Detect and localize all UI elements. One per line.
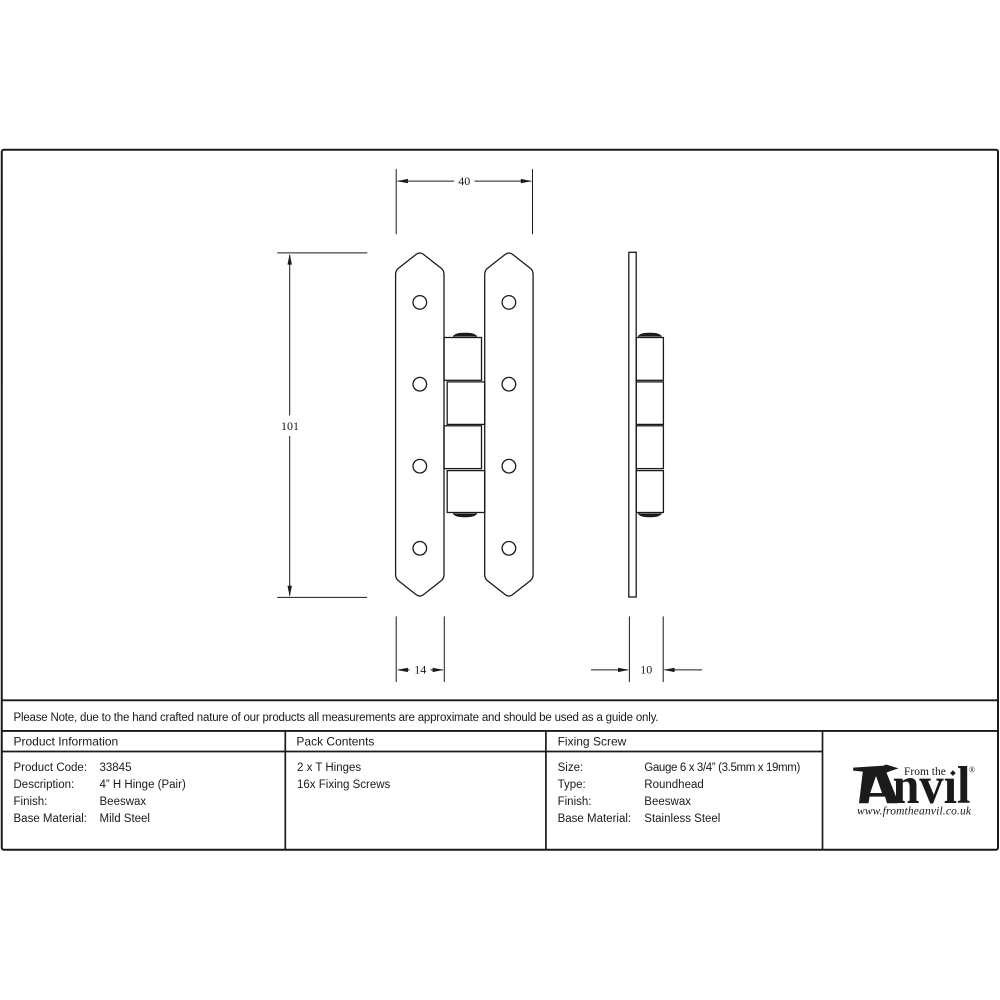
svg-text:Type:: Type:	[558, 779, 586, 791]
svg-text:10: 10	[640, 663, 652, 677]
svg-text:101: 101	[281, 419, 299, 433]
svg-text:Beeswax: Beeswax	[100, 796, 147, 808]
svg-text:40: 40	[458, 174, 470, 188]
svg-text:4” H Hinge (Pair): 4” H Hinge (Pair)	[100, 779, 186, 791]
svg-text:33845: 33845	[100, 762, 132, 774]
svg-text:Gauge 6 x 3/4” (3.5mm x 19mm): Gauge 6 x 3/4” (3.5mm x 19mm)	[644, 762, 800, 774]
svg-text:Product Information: Product Information	[14, 734, 119, 748]
svg-text:Size:: Size:	[558, 762, 584, 774]
svg-text:Beeswax: Beeswax	[644, 796, 691, 808]
svg-text:2 x T Hinges: 2 x T Hinges	[297, 762, 361, 774]
svg-text:Finish:: Finish:	[14, 796, 48, 808]
svg-text:Product Code:: Product Code:	[14, 762, 88, 774]
svg-text:16x Fixing Screws: 16x Fixing Screws	[297, 779, 391, 791]
svg-text:Base Material:: Base Material:	[558, 813, 632, 825]
svg-text:Finish:: Finish:	[558, 796, 592, 808]
svg-text:www.fromtheanvil.co.uk: www.fromtheanvil.co.uk	[857, 806, 972, 818]
svg-text:Please Note, due to the hand c: Please Note, due to the hand crafted nat…	[14, 712, 659, 724]
svg-text:Mild Steel: Mild Steel	[100, 813, 151, 825]
svg-text:Pack Contents: Pack Contents	[296, 734, 374, 748]
svg-text:Roundhead: Roundhead	[644, 779, 703, 791]
svg-text:Stainless Steel: Stainless Steel	[644, 813, 720, 825]
svg-text:Description:: Description:	[14, 779, 75, 791]
svg-text:Base Material:: Base Material:	[14, 813, 88, 825]
svg-text:®: ®	[969, 766, 975, 775]
svg-text:Fixing Screw: Fixing Screw	[558, 734, 627, 748]
svg-text:14: 14	[414, 663, 426, 677]
